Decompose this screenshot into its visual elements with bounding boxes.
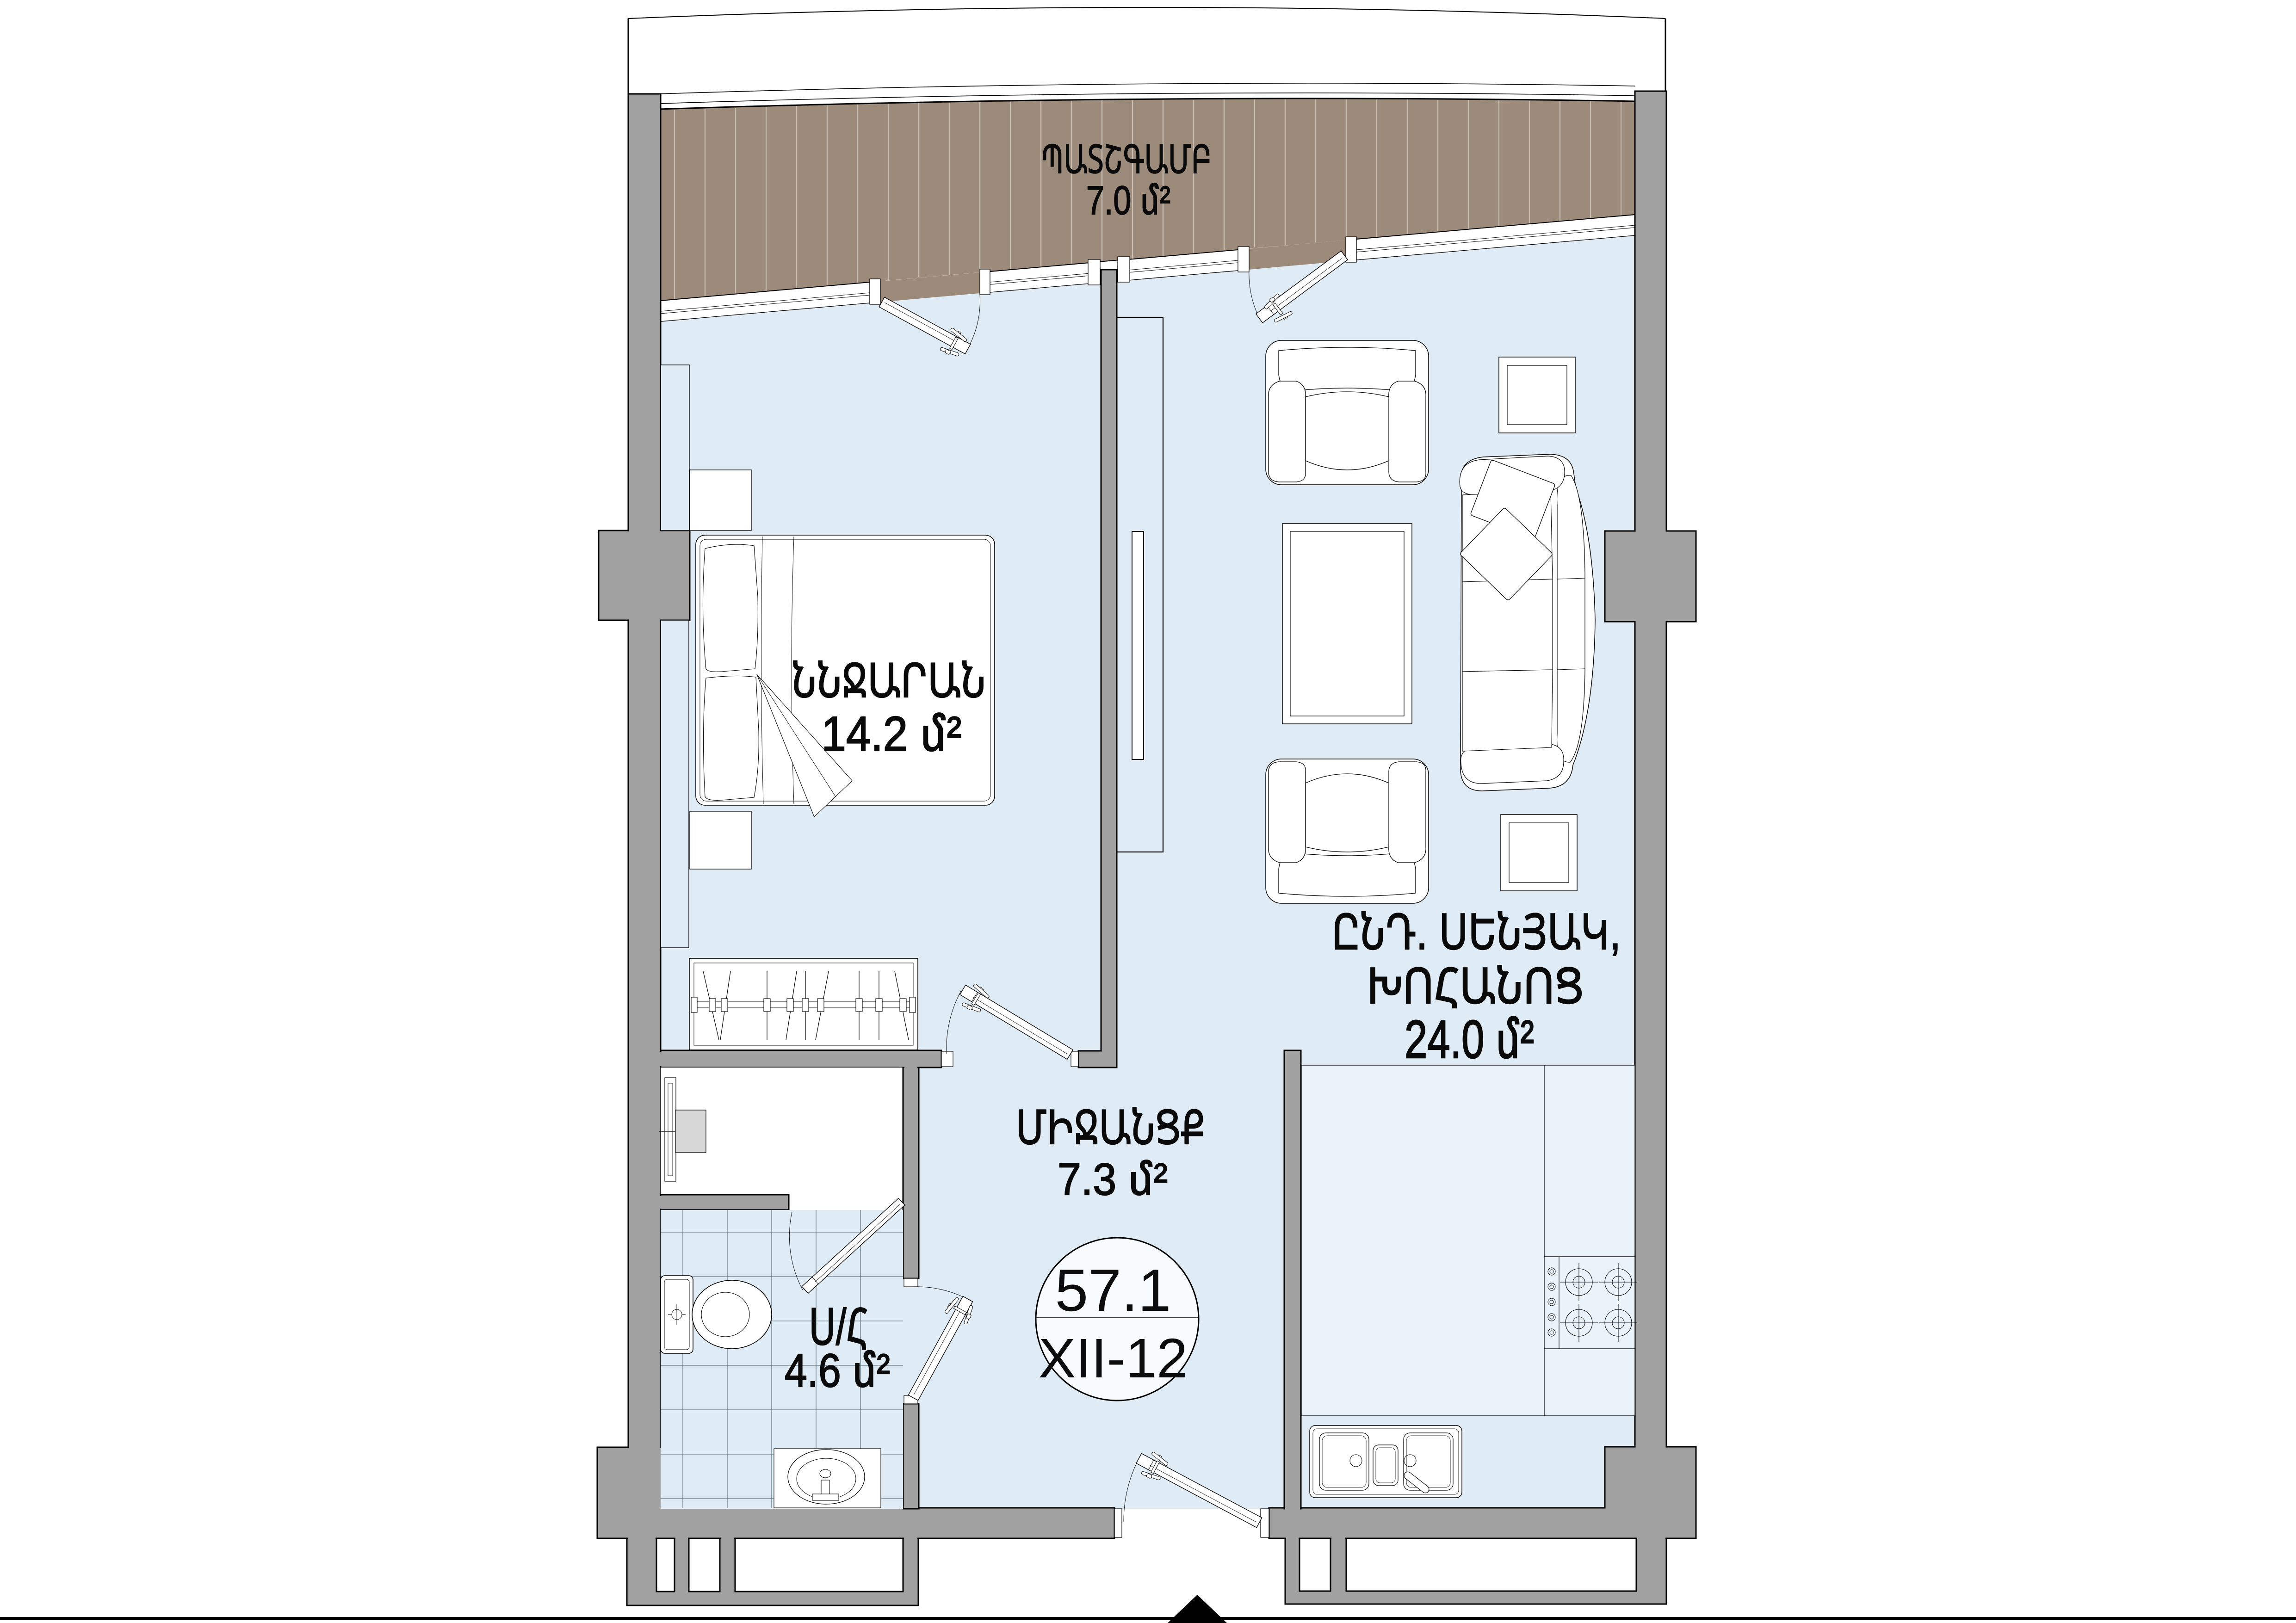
svg-text:XII-12: XII-12 [1039, 1327, 1188, 1389]
svg-text:57.1: 57.1 [1055, 1257, 1171, 1324]
